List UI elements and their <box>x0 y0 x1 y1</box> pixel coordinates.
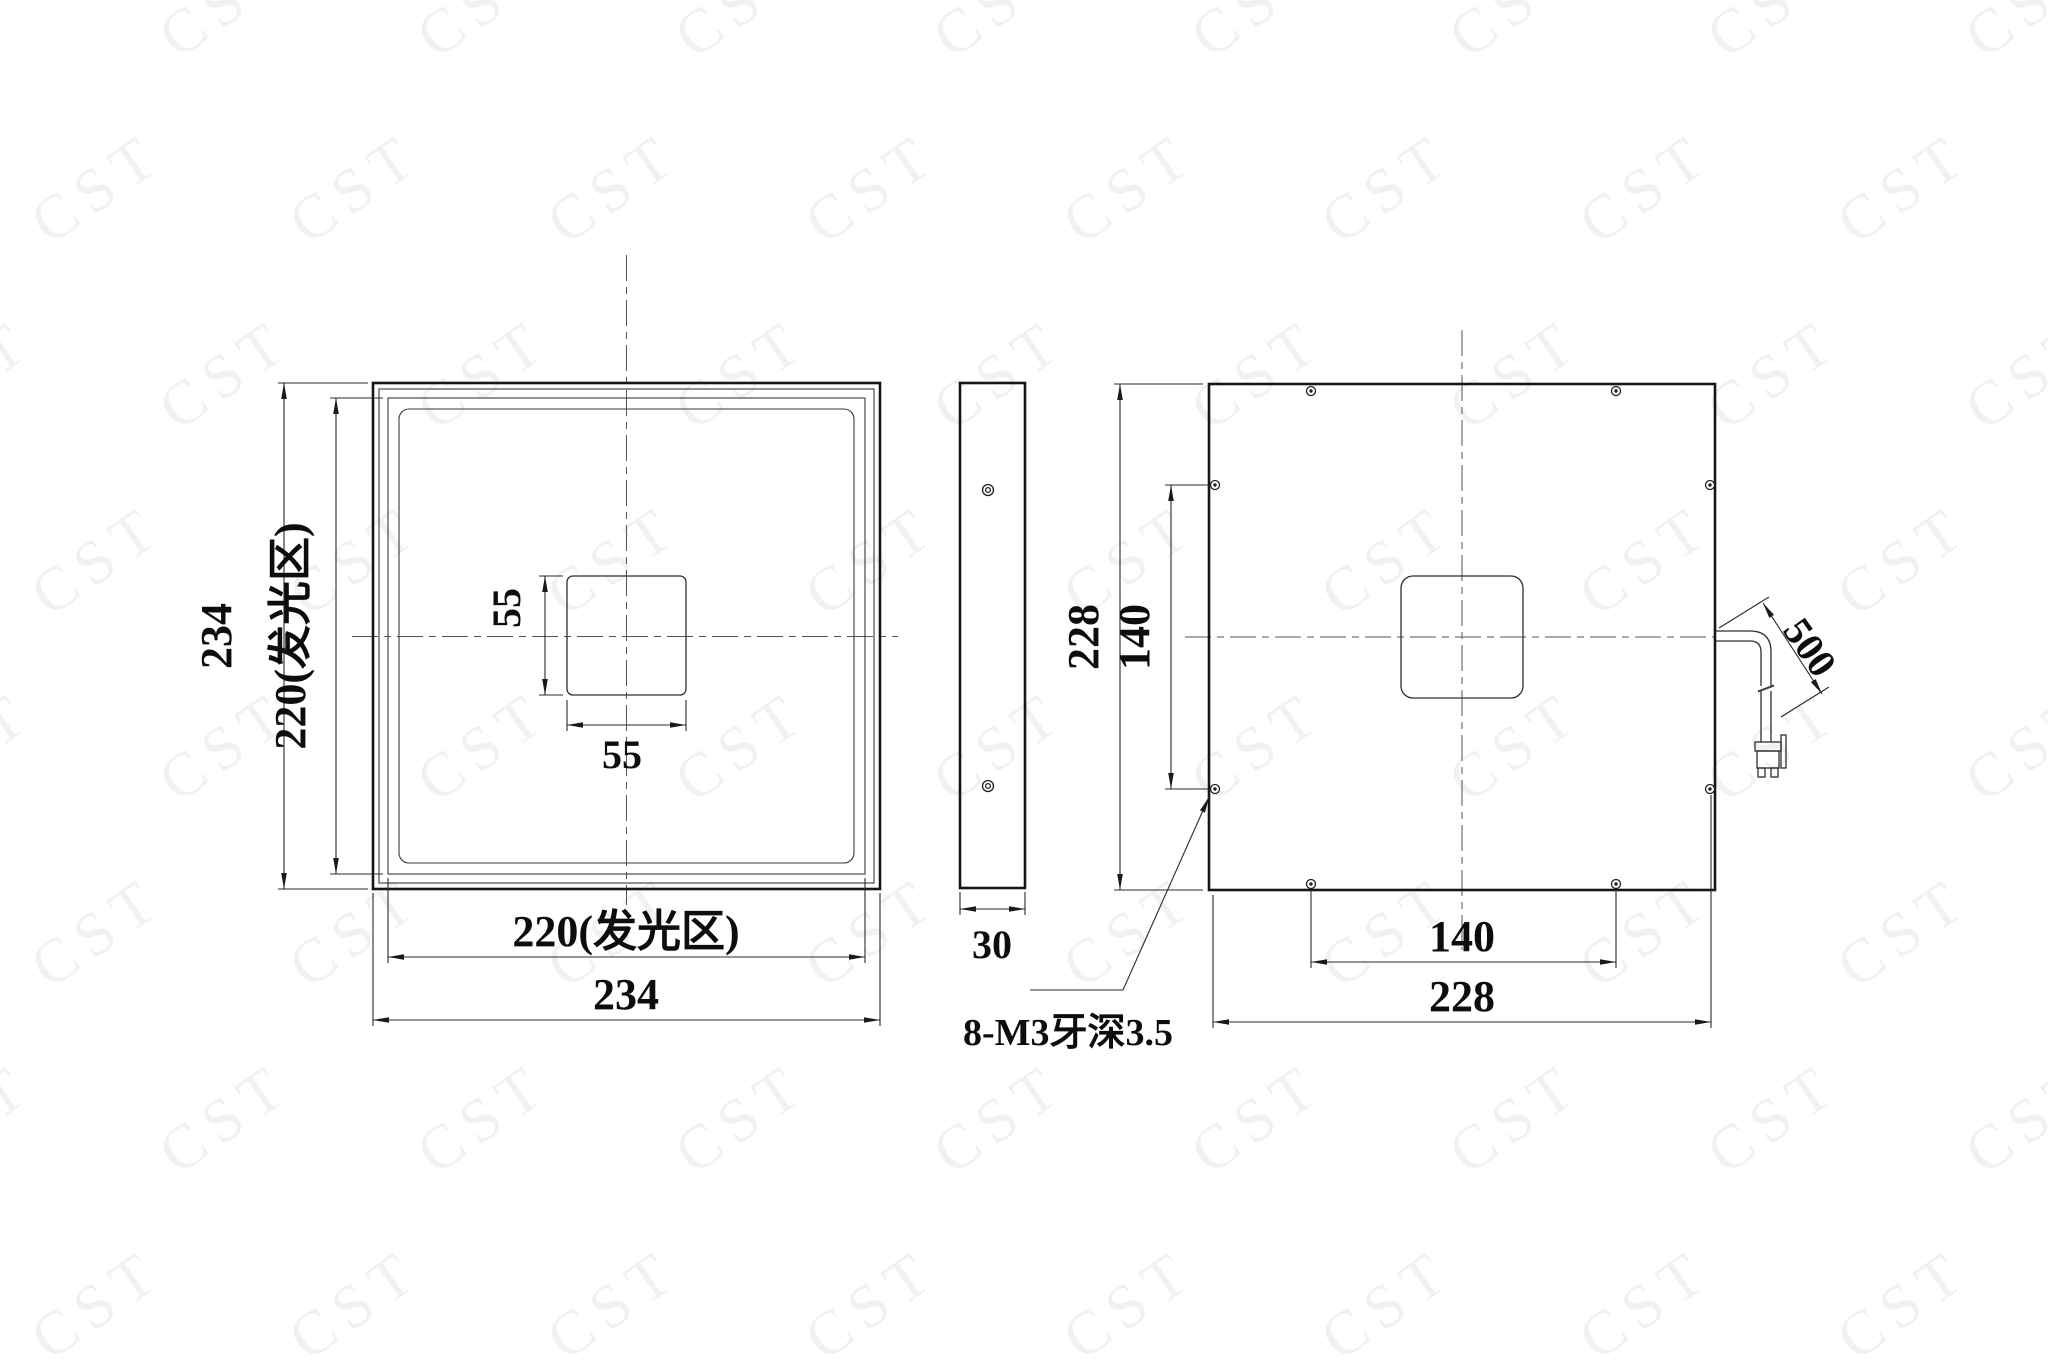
dim-label-cable-length: 500 <box>1774 610 1845 685</box>
watermark-text: CST <box>1309 491 1466 629</box>
watermark-text: CST <box>1825 1235 1982 1366</box>
watermark-text: CST <box>1179 0 1336 71</box>
side-profile <box>960 383 1025 888</box>
watermark-text: CST <box>19 491 176 629</box>
drawing-canvas: CSTCSTCSTCSTCSTCSTCSTCSTCSTCSTCSTCSTCSTC… <box>0 0 2048 1366</box>
side-view: 30 <box>960 383 1025 967</box>
watermark-text: CST <box>1179 1049 1336 1187</box>
watermark-text: CST <box>0 677 46 815</box>
watermark-text: CST <box>0 1049 46 1187</box>
screw-hole-center <box>1708 483 1711 486</box>
screw-hole-center <box>1309 882 1312 885</box>
watermark-text: CST <box>147 0 304 71</box>
dim-label-side-thickness: 30 <box>972 922 1012 967</box>
watermark-text: CST <box>793 491 950 629</box>
dim-label-back-height: 228 <box>1059 604 1108 670</box>
watermark-text: CST <box>277 863 434 1001</box>
watermark-text: CST <box>663 0 820 71</box>
watermark-text: CST <box>535 1235 692 1366</box>
dim-label-front-width: 234 <box>593 970 659 1019</box>
watermark-text: CST <box>19 863 176 1001</box>
watermark-text: CST <box>1695 1049 1852 1187</box>
watermark-text: CST <box>535 119 692 257</box>
watermark-text: CST <box>1953 0 2048 71</box>
watermark-text: CST <box>1825 863 1982 1001</box>
watermark-text: CST <box>277 119 434 257</box>
screw-hole-center <box>1614 389 1617 392</box>
watermark-text: CST <box>0 0 46 71</box>
watermark-text: CST <box>1437 305 1594 443</box>
watermark-text: CST <box>1051 119 1208 257</box>
watermark-text: CST <box>663 677 820 815</box>
dim-label-front-luminous-width: 220(发光区) <box>512 907 739 956</box>
watermark-text: CST <box>405 1049 562 1187</box>
watermark-text: CST <box>921 305 1078 443</box>
watermark-text: CST <box>663 1049 820 1187</box>
dim-label-front-luminous-height: 220(发光区) <box>266 522 315 749</box>
watermark-text: CST <box>1309 1235 1466 1366</box>
watermark-text: CST <box>19 1235 176 1366</box>
watermark-text: CST <box>921 677 1078 815</box>
dim-label-back-width: 228 <box>1429 972 1495 1021</box>
watermark-text: CST <box>921 1049 1078 1187</box>
watermark-text: CST <box>1695 0 1852 71</box>
side-screw-hole <box>986 784 991 789</box>
watermark-text: CST <box>405 305 562 443</box>
watermark-text: CST <box>1567 119 1724 257</box>
dim-label-back-holes-h: 140 <box>1429 912 1495 961</box>
ext-line <box>1719 597 1769 628</box>
watermark-text: CST <box>1437 1049 1594 1187</box>
watermark-text: CST <box>405 0 562 71</box>
watermark-text: CST <box>277 1235 434 1366</box>
watermark-text: CST <box>1695 305 1852 443</box>
watermark-text: CST <box>1567 1235 1724 1366</box>
watermark-text: CST <box>147 1049 304 1187</box>
watermark-text: CST <box>535 491 692 629</box>
screw-hole-center <box>1213 787 1216 790</box>
watermark-text: CST <box>1953 677 2048 815</box>
watermark-text: CST <box>1953 305 2048 443</box>
watermark-text: CST <box>1953 1049 2048 1187</box>
watermark-text: CST <box>0 305 46 443</box>
watermark-text: CST <box>1695 677 1852 815</box>
screw-hole-center <box>1309 389 1312 392</box>
dim-label-back-holes-v: 140 <box>1110 604 1159 670</box>
dim-label-window-height: 55 <box>484 588 529 628</box>
watermark-text: CST <box>793 1235 950 1366</box>
watermark-text: CST <box>921 0 1078 71</box>
dim-label-front-height: 234 <box>192 603 241 669</box>
watermark-text: CST <box>793 863 950 1001</box>
screw-hole-center <box>1708 787 1711 790</box>
watermark-text: CST <box>1179 677 1336 815</box>
watermark-text: CST <box>663 305 820 443</box>
watermark-text: CST <box>1825 119 1982 257</box>
dim-label-window-width: 55 <box>602 732 642 777</box>
screw-hole-center <box>1614 882 1617 885</box>
side-screw-hole <box>986 488 991 493</box>
watermark-text: CST <box>1179 305 1336 443</box>
watermark-text: CST <box>1051 1235 1208 1366</box>
watermark-text: CST <box>1825 491 1982 629</box>
watermark-text: CST <box>1567 863 1724 1001</box>
thread-note-label: 8-M3牙深3.5 <box>963 1012 1173 1054</box>
watermark-text: CST <box>1309 119 1466 257</box>
watermark-text: CST <box>1051 863 1208 1001</box>
technical-drawing: CSTCSTCSTCSTCSTCSTCSTCSTCSTCSTCSTCSTCSTC… <box>0 0 2048 1366</box>
watermark-text: CST <box>1567 491 1724 629</box>
watermark-text: CST <box>19 119 176 257</box>
watermark-text: CST <box>405 677 562 815</box>
watermark-text: CST <box>793 119 950 257</box>
watermark-text: CST <box>1437 0 1594 71</box>
watermark-text: CST <box>147 305 304 443</box>
screw-hole-center <box>1213 483 1216 486</box>
